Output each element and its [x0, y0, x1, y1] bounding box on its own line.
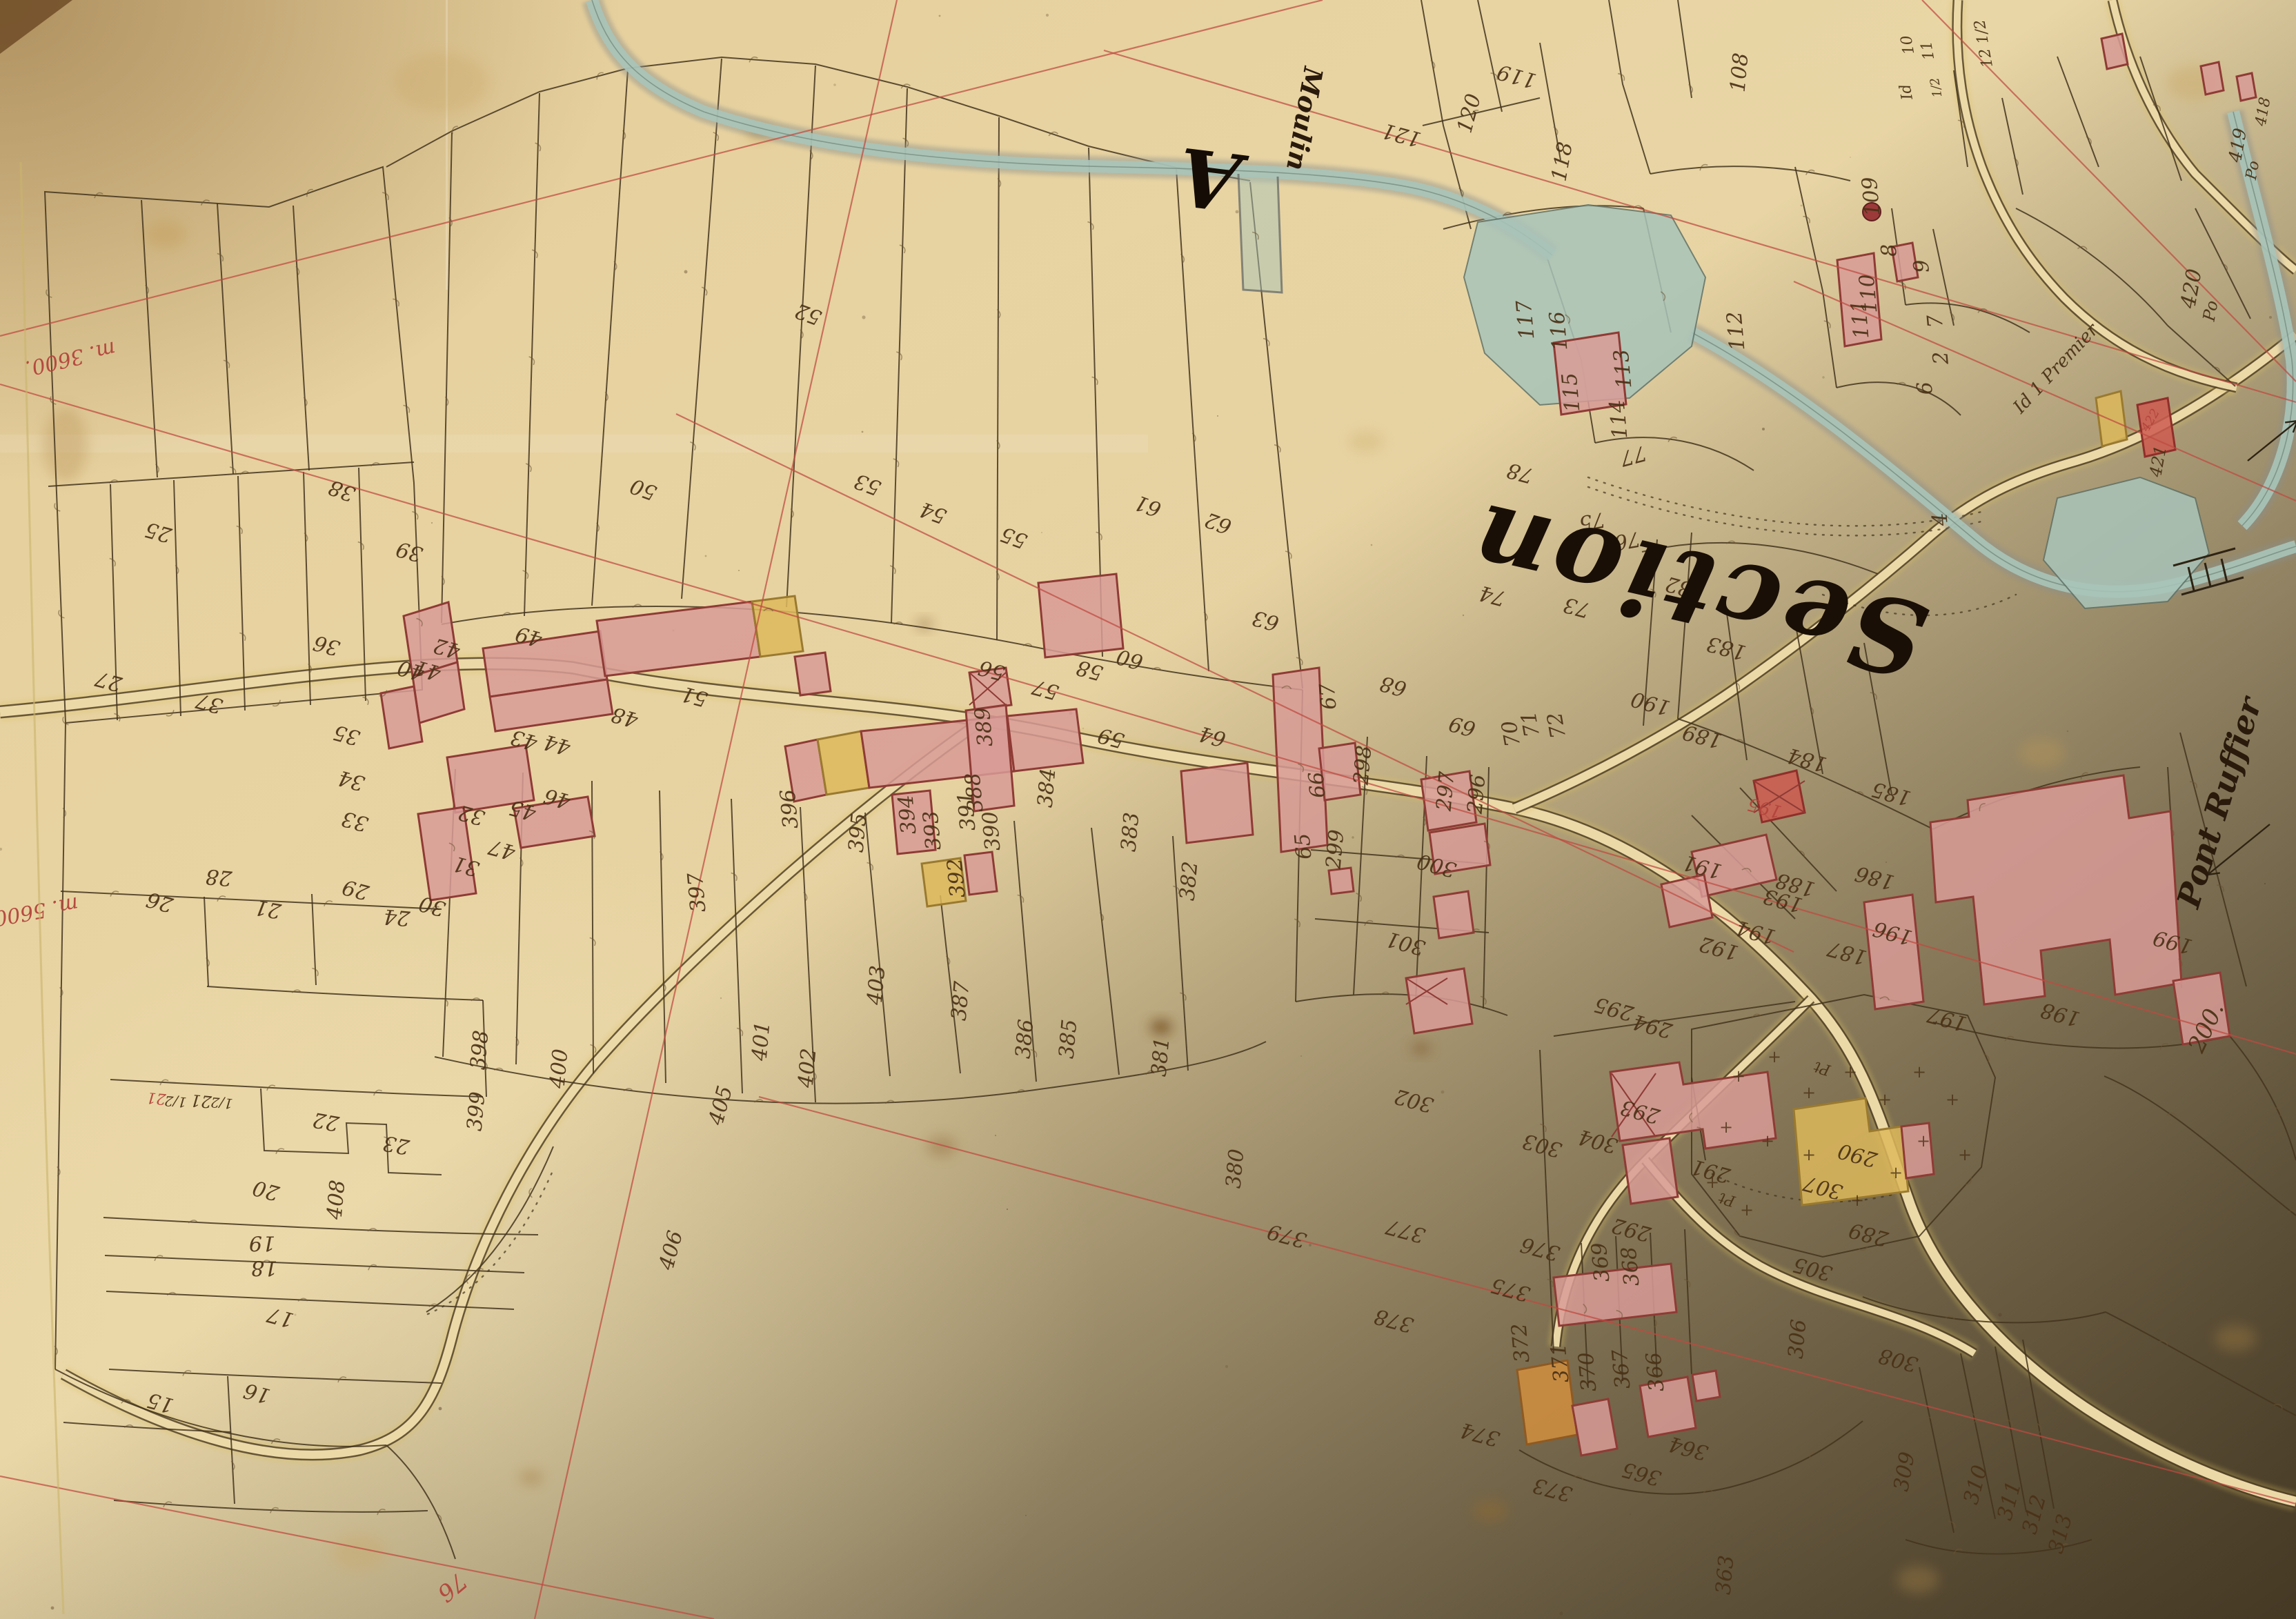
- parcel-number-400: 400: [546, 1048, 573, 1090]
- parcel-number-395: 395: [844, 812, 872, 853]
- speck: [1850, 157, 1851, 158]
- parcel-number-387: 387: [947, 980, 975, 1022]
- parcel-number-390: 390: [978, 811, 1006, 852]
- parcel-number-66: 66: [1304, 771, 1330, 799]
- cemetery-cross: +: [1917, 1131, 1930, 1151]
- parcel-number-391: 391: [953, 791, 981, 832]
- map-label: 1/2: [164, 1093, 187, 1111]
- speck: [862, 431, 864, 433]
- speck: [738, 570, 740, 571]
- speck: [862, 315, 865, 319]
- speck: [1007, 1209, 1008, 1210]
- stain: [2019, 738, 2066, 768]
- cemetery-cross: +: [1958, 1145, 1972, 1164]
- parcel-number-398: 398: [466, 1029, 494, 1071]
- speck: [995, 1135, 996, 1136]
- parcel-number-108: 108: [1726, 52, 1754, 93]
- map-label: 21: [190, 1091, 213, 1112]
- cemetery-cross: +: [1768, 1047, 1781, 1066]
- map-label: Po: [2243, 159, 2264, 181]
- speck: [705, 555, 707, 557]
- stain: [1348, 430, 1384, 453]
- parcel-number-71: 71: [1516, 709, 1545, 739]
- speck: [1630, 1513, 1631, 1515]
- parcel-number-369: 369: [1587, 1242, 1615, 1283]
- stain: [927, 1136, 957, 1157]
- parcel-number-402: 402: [794, 1047, 822, 1089]
- speck: [939, 15, 941, 17]
- building: [2201, 62, 2224, 95]
- speck: [1082, 728, 1084, 729]
- parcel-number-382: 382: [1176, 860, 1203, 902]
- parcel-number-113: 113: [1610, 348, 1637, 390]
- building: [1329, 868, 1354, 894]
- parcel-number-116: 116: [1545, 310, 1573, 352]
- cemetery-cross: +: [1719, 1118, 1733, 1137]
- parcel-number-298: 298: [1349, 744, 1377, 786]
- stain: [1897, 1566, 1939, 1593]
- speck: [2269, 316, 2272, 319]
- speck: [1762, 428, 1765, 430]
- speck: [431, 522, 433, 524]
- parcel-number-367: 367: [1608, 1348, 1636, 1390]
- parcel-number-114: 114: [1605, 399, 1633, 440]
- map-label: 1/2: [210, 1094, 233, 1113]
- parcel-number-110: 110: [1855, 273, 1883, 315]
- parcel-number-370: 370: [1574, 1351, 1602, 1393]
- parcel-number-393: 393: [919, 810, 947, 851]
- speck: [2264, 883, 2266, 884]
- cemetery-cross: +: [1889, 1163, 1903, 1182]
- cadastral-map-sheet: ++++++++++++++++ 38503949363534332928372…: [0, 0, 2296, 1619]
- parcel-number-21: 21: [253, 895, 284, 923]
- building: [2101, 34, 2128, 69]
- parcel-number-381: 381: [1147, 1036, 1175, 1077]
- building: [1864, 895, 1923, 1009]
- parcel-number-403: 403: [863, 964, 891, 1006]
- cemetery-cross: +: [1946, 1090, 1959, 1109]
- stain: [1412, 1042, 1431, 1055]
- speck: [720, 997, 722, 999]
- parcel-number-386: 386: [1011, 1018, 1039, 1060]
- parcel-number-9: 9: [1909, 259, 1934, 274]
- parcel-number-67: 67: [1315, 682, 1341, 711]
- building: [1572, 1399, 1617, 1456]
- stain: [145, 221, 186, 248]
- parcel-number-18: 18: [251, 1255, 277, 1280]
- speck: [1822, 376, 1824, 378]
- speck: [439, 1407, 442, 1411]
- fold-line: [446, 0, 448, 290]
- parcel-number-22: 22: [311, 1107, 342, 1135]
- fold-band: [0, 435, 1148, 453]
- speck: [1217, 415, 1218, 417]
- speck: [1559, 1611, 1563, 1615]
- parcel-number-2: 2: [1928, 350, 1954, 366]
- parcel-number-408: 408: [323, 1179, 350, 1221]
- stain: [2215, 1325, 2256, 1351]
- building: [2096, 391, 2127, 446]
- parcel-number-4: 4: [1928, 512, 1953, 528]
- parcel-number-389: 389: [971, 706, 998, 748]
- parcel-number-23: 23: [382, 1131, 413, 1159]
- speck: [1463, 615, 1464, 616]
- speck: [1371, 544, 1373, 546]
- parcel-number-306: 306: [1784, 1318, 1812, 1360]
- vignette-top-left: [0, 0, 621, 483]
- stain: [43, 407, 88, 483]
- parcel-number-394: 394: [894, 794, 922, 835]
- building: [381, 686, 422, 748]
- map-label: 11: [1918, 39, 1938, 61]
- building: [795, 653, 831, 695]
- parcel-number-366: 366: [1642, 1351, 1670, 1393]
- parcel-number-397: 397: [684, 871, 711, 913]
- parcel-number-6: 6: [1912, 381, 1938, 396]
- parcel-number-65: 65: [1290, 832, 1316, 860]
- mill-race-spur: [1238, 174, 1282, 292]
- parcel-number-297: 297: [1432, 770, 1460, 813]
- building: [1434, 891, 1474, 938]
- parcel-number-299: 299: [1322, 828, 1349, 871]
- speck: [1300, 1055, 1302, 1057]
- parcel-number-399: 399: [463, 1091, 491, 1132]
- speck: [1886, 862, 1887, 863]
- parcel-number-384: 384: [1033, 767, 1061, 808]
- map-label: 21: [146, 1089, 167, 1107]
- speck: [1998, 1313, 2001, 1316]
- parcel-number-72: 72: [1543, 711, 1571, 741]
- parcel-number-396: 396: [776, 788, 804, 830]
- cemetery-cross: +: [1912, 1062, 1926, 1082]
- cemetery-cross: +: [1761, 1131, 1774, 1151]
- stain: [1472, 1499, 1508, 1522]
- speck: [1046, 14, 1049, 17]
- parcel-number-371: 371: [1547, 1342, 1574, 1384]
- speck: [1041, 532, 1042, 533]
- parcel-number-368: 368: [1617, 1246, 1645, 1287]
- cemetery-cross: +: [1878, 1090, 1892, 1109]
- building: [1623, 1138, 1678, 1204]
- parcel-number-385: 385: [1055, 1018, 1082, 1060]
- speck: [1801, 205, 1803, 207]
- building: [1692, 1371, 1720, 1401]
- parcel-number-372: 372: [1507, 1322, 1535, 1364]
- stain: [1150, 1020, 1172, 1035]
- map-label: Po: [2199, 299, 2222, 324]
- building: [1038, 574, 1123, 657]
- parcel-number-115: 115: [1558, 372, 1585, 413]
- map-label: Id: [1897, 83, 1917, 102]
- speck: [1225, 1365, 1228, 1368]
- cemetery-cross: +: [1732, 1066, 1745, 1086]
- stain: [393, 52, 490, 114]
- cemetery-cross: +: [1850, 1191, 1864, 1210]
- parcel-number-28: 28: [205, 864, 234, 890]
- parcel-number-24: 24: [383, 904, 412, 930]
- parcel-number-363: 363: [1712, 1554, 1739, 1596]
- speck: [1309, 1244, 1312, 1246]
- building: [1007, 709, 1083, 771]
- speck: [2067, 731, 2068, 732]
- parcel-number-117: 117: [1512, 299, 1540, 341]
- parcel-number-401: 401: [748, 1020, 775, 1062]
- parcel-number-392: 392: [943, 857, 971, 899]
- map-label: 10: [1898, 34, 1918, 56]
- parcel-number-19: 19: [249, 1231, 275, 1255]
- cemetery-cross: +: [1802, 1083, 1816, 1102]
- cemetery-cross: +: [1843, 1062, 1857, 1082]
- map-canvas: ++++++++++++++++ 38503949363534332928372…: [0, 0, 2296, 1619]
- speck: [51, 1607, 55, 1610]
- speck: [1352, 836, 1354, 838]
- speck: [684, 270, 688, 274]
- parcel-number-8: 8: [1877, 243, 1902, 258]
- speck: [1025, 1515, 1027, 1516]
- parcel-number-109: 109: [1858, 176, 1886, 217]
- speck: [1441, 1091, 1445, 1094]
- parcel-number-296: 296: [1463, 773, 1491, 815]
- parcel-number-383: 383: [1117, 811, 1145, 853]
- cemetery-cross: +: [1740, 1200, 1754, 1220]
- cemetery-cross: +: [1802, 1145, 1816, 1164]
- building: [1181, 763, 1253, 843]
- building: [1406, 969, 1472, 1033]
- speck: [833, 83, 836, 86]
- parcel-number-380: 380: [1222, 1148, 1249, 1189]
- parcel-number-112: 112: [1723, 310, 1750, 352]
- building: [2237, 73, 2256, 101]
- stain: [519, 1469, 544, 1486]
